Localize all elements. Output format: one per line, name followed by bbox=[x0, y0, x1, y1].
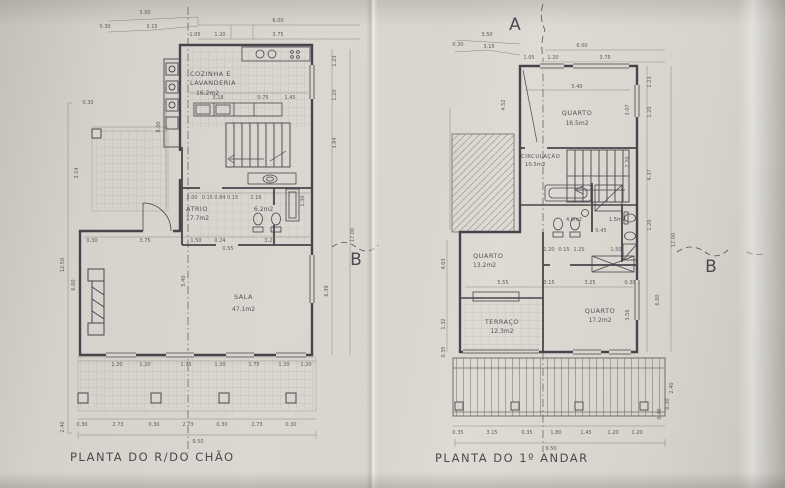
dim-label: 4.03 bbox=[441, 258, 447, 269]
dim-label: 1.20 bbox=[111, 362, 122, 368]
dim-label: 6.39 bbox=[324, 285, 330, 296]
dim-label: 5.55 bbox=[497, 280, 508, 286]
dim-label: 1.20 bbox=[139, 362, 150, 368]
dim-label: 0.15 0.84 0.15 bbox=[202, 195, 239, 201]
dim-label: 1.20 bbox=[547, 55, 558, 61]
dim-label: 1.25 bbox=[573, 247, 584, 253]
dim-label: 1.20 bbox=[278, 362, 289, 368]
dim-label: 0.30 bbox=[216, 422, 227, 428]
room-area: 17.7m2 bbox=[186, 215, 209, 222]
dim-label: 3.25 bbox=[584, 280, 595, 286]
dim-label: 1.05 bbox=[523, 55, 534, 61]
room-area: 16.5m2 bbox=[565, 120, 588, 127]
room-area: 12.3m2 bbox=[490, 328, 513, 335]
dim-label: 2.73 bbox=[251, 422, 262, 428]
dim-label: 0.45 bbox=[595, 228, 606, 234]
dim-label: 0.35 bbox=[441, 346, 447, 357]
dim-label: 0.35 bbox=[452, 430, 463, 436]
fireplace bbox=[88, 269, 104, 335]
dim-label: 0.30 bbox=[86, 238, 97, 244]
pergola bbox=[453, 358, 665, 416]
dim-label: 0.30 bbox=[665, 398, 671, 409]
dim-label: 9.50 bbox=[192, 439, 203, 445]
room-area: 16.2m2 bbox=[196, 90, 219, 97]
section-line-a bbox=[541, 4, 545, 58]
room-name: QUARTO bbox=[473, 252, 503, 260]
dim-label: 1.50 bbox=[610, 247, 621, 253]
photographed-blueprint: 3.50 0.30 3.15 6.00 1.05 1.20 3.75 0.30 … bbox=[0, 0, 785, 488]
room-area: 6.2m2 bbox=[254, 206, 273, 213]
room-name: COZINHA E bbox=[190, 70, 231, 78]
dim-label: 1.20 bbox=[647, 219, 653, 230]
dim-label: 1.45 bbox=[580, 430, 591, 436]
room-area: 13.2m2 bbox=[473, 262, 496, 269]
room-area: 10.5m2 bbox=[525, 162, 545, 168]
dim-label: 0.15 bbox=[543, 280, 554, 286]
dim-label: 1.20 bbox=[607, 430, 618, 436]
dim-label: 17.00 bbox=[350, 228, 356, 242]
dim-label: 6.00 bbox=[71, 279, 77, 290]
dim-label: 1.45 bbox=[284, 95, 295, 101]
dim-label: 3.50 bbox=[481, 32, 492, 38]
dim-label: 17.00 bbox=[671, 233, 677, 247]
dim-label: 3.07 bbox=[625, 104, 631, 115]
dim-label: 5.40 bbox=[181, 275, 187, 286]
dim-label: 1.80 bbox=[550, 430, 561, 436]
room-area: 47.1m2 bbox=[232, 306, 255, 313]
dim-label: 5.40 bbox=[571, 84, 582, 90]
dim-label: 6.00 bbox=[655, 294, 661, 305]
dim-label: 8.00 bbox=[156, 121, 162, 132]
dim-label: 3.84 bbox=[332, 137, 338, 148]
dim-label: 2.20 bbox=[625, 156, 631, 167]
dim-label: 12.50 bbox=[60, 258, 66, 272]
room-name: LAVANDERIA bbox=[190, 79, 236, 87]
dim-label: 2.40 bbox=[60, 421, 66, 432]
room-area: 4.0m2 bbox=[566, 217, 582, 223]
paper-fold-crease bbox=[366, 0, 378, 488]
staircase bbox=[226, 123, 290, 167]
dim-label: 3.15 bbox=[146, 24, 157, 30]
dim-label: 2.00 bbox=[186, 195, 197, 201]
paper-right-edge-shadow bbox=[738, 0, 785, 488]
dim-label: 0.55 bbox=[222, 246, 233, 252]
dim-label: 1.20 bbox=[300, 362, 311, 368]
dim-label: 0.15 bbox=[558, 247, 569, 253]
dim-label: 1.75 bbox=[180, 362, 191, 368]
plan-title: PLANTA DO R/DO CHÃO bbox=[70, 449, 235, 464]
staircase bbox=[567, 150, 629, 202]
dim-label: 2.16 bbox=[250, 195, 261, 201]
section-marker-b: B bbox=[705, 257, 717, 277]
dim-label: 6.00 bbox=[576, 43, 587, 49]
dim-label: 4.37 bbox=[647, 169, 653, 180]
dim-label: 0.30 bbox=[657, 408, 663, 419]
dim-label: 0.30 bbox=[148, 422, 159, 428]
dim-label: 1.20 bbox=[214, 362, 225, 368]
dim-label: 1.23 bbox=[332, 55, 338, 66]
room-name: CIRCULAÇÃO bbox=[521, 153, 560, 160]
dim-label: 1.20 bbox=[631, 430, 642, 436]
ground-floor-plan-drawing: 3.50 0.30 3.15 6.00 1.05 1.20 3.75 0.30 … bbox=[48, 3, 380, 470]
dim-label: 1.36 bbox=[300, 195, 306, 206]
dim-label: 1.20 bbox=[332, 89, 338, 100]
roof-hatch bbox=[452, 134, 514, 232]
paper-bottom-shadow bbox=[0, 472, 785, 488]
dim-label: 3.14 bbox=[74, 167, 80, 178]
dim-label: 6.00 bbox=[272, 18, 283, 24]
dim-label: 1.05 bbox=[189, 32, 200, 38]
dim-label: 3.75 bbox=[599, 55, 610, 61]
dim-label: 0.30 bbox=[624, 280, 635, 286]
dim-label: 1.32 bbox=[441, 318, 447, 329]
dim-label: 1.20 bbox=[543, 247, 554, 253]
dim-label: 0.75 bbox=[257, 95, 268, 101]
dim-label: 3.56 bbox=[625, 309, 631, 320]
dim-label: 1.50 bbox=[190, 238, 201, 244]
dim-label: 3.75 bbox=[272, 32, 283, 38]
room-name: TERRAÇO bbox=[484, 318, 519, 326]
section-marker-a: A bbox=[509, 15, 521, 35]
dim-label: 0.30 bbox=[99, 24, 110, 30]
room-area: 17.2m2 bbox=[588, 317, 611, 324]
dim-label: 0.30 bbox=[285, 422, 296, 428]
dim-label: 2.73 bbox=[182, 422, 193, 428]
room-name: ATRIO bbox=[186, 205, 208, 213]
dim-label: 3.75 bbox=[139, 238, 150, 244]
dim-label: 3.15 bbox=[486, 430, 497, 436]
dim-label: 3.15 bbox=[483, 44, 494, 50]
dim-label: 3.50 bbox=[139, 10, 150, 16]
room-name: QUARTO bbox=[585, 307, 615, 315]
first-floor-plan-drawing: A 3.50 0.30 3.15 6.00 bbox=[425, 0, 773, 472]
dim-label: 1.20 bbox=[647, 106, 653, 117]
room-area: 1.5m2 bbox=[609, 217, 625, 223]
room-name: SALA bbox=[234, 293, 253, 301]
dim-label: 0.35 bbox=[521, 430, 532, 436]
dim-label: 0.30 bbox=[82, 100, 93, 106]
room-name: QUARTO bbox=[562, 109, 592, 117]
dim-label: 3.25 bbox=[264, 238, 275, 244]
dim-label: 0.30 bbox=[76, 422, 87, 428]
dim-label: 2.73 bbox=[112, 422, 123, 428]
dim-label: 4.52 bbox=[501, 99, 507, 110]
dim-label: 1.20 bbox=[214, 32, 225, 38]
dim-label: 2.40 bbox=[669, 382, 675, 393]
dim-label: 1.75 bbox=[248, 362, 259, 368]
section-marker-b: B bbox=[350, 250, 362, 270]
dim-label: 0.30 bbox=[452, 42, 463, 48]
dim-label: 0.24 bbox=[214, 238, 225, 244]
plan-title: PLANTA DO 1º ANDAR bbox=[435, 451, 589, 465]
dim-label: 1.23 bbox=[647, 76, 653, 87]
